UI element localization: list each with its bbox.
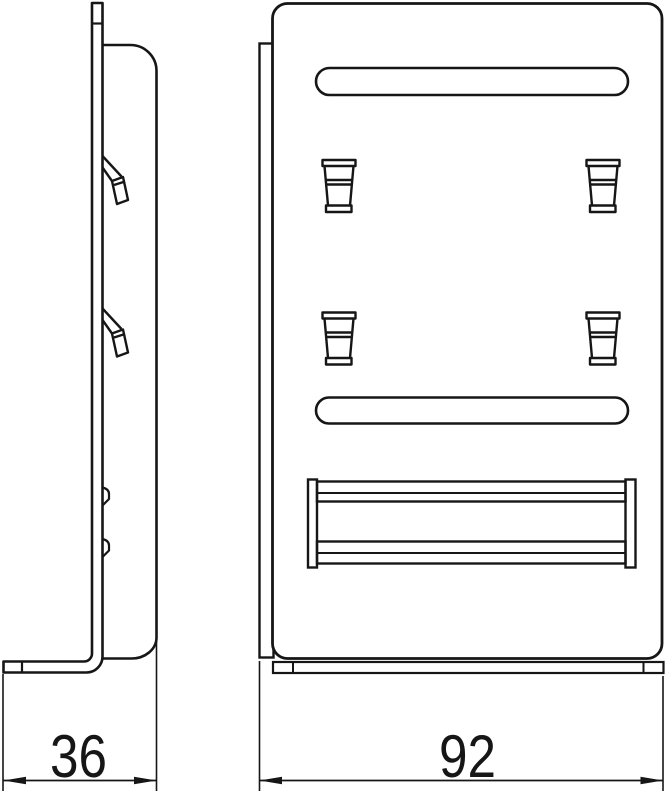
hook-lower [103, 309, 129, 357]
side-cover-outline [103, 45, 157, 659]
dimension-label-92: 92 [439, 723, 496, 790]
bracket-profile [4, 3, 103, 673]
arrowhead-left-36 [4, 777, 27, 784]
front-view [260, 4, 664, 674]
arrowhead-left-92 [260, 777, 283, 784]
arrowhead-right-36 [134, 777, 157, 784]
front-plate [273, 4, 663, 659]
bottom-lip [273, 662, 664, 673]
arrowhead-right-92 [641, 777, 664, 784]
drawing-sheet: 36 92 [0, 0, 666, 794]
technical-drawing: 36 92 [0, 0, 666, 794]
dimension-depth: 36 [3, 637, 157, 791]
side-view [4, 3, 157, 673]
dimension-width: 92 [260, 661, 664, 791]
hook-upper [103, 156, 129, 204]
dimension-label-36: 36 [50, 723, 107, 790]
